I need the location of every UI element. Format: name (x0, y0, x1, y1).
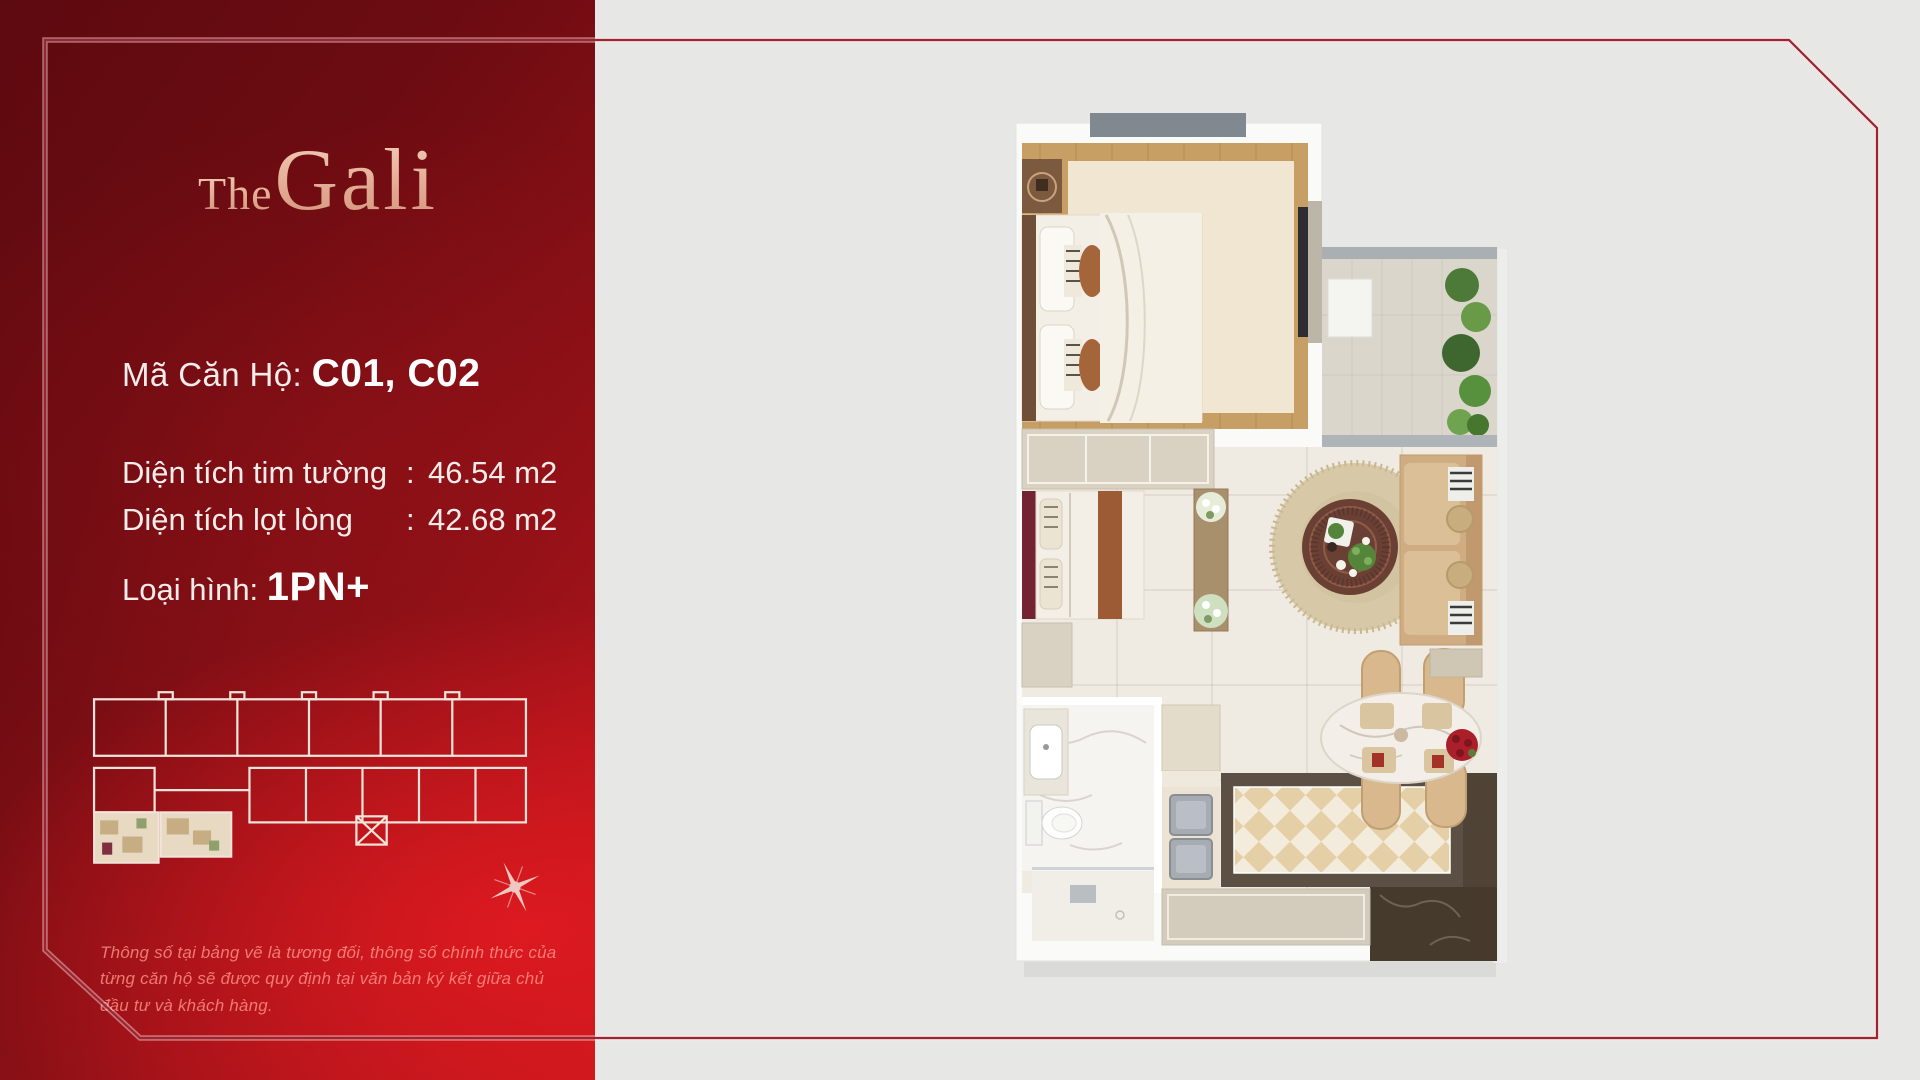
sofa (1400, 455, 1482, 677)
balcony-rail-bottom (1322, 435, 1497, 447)
shower (1032, 867, 1154, 941)
unit-type-line: Loại hình: 1PN+ (122, 565, 370, 610)
unit-type-value: 1PN+ (267, 565, 370, 609)
bed-runner (1098, 491, 1122, 619)
flower-console (1194, 489, 1228, 631)
headboard (1022, 491, 1036, 619)
unit-code-line: Mã Căn Hộ: C01, C02 (122, 352, 480, 396)
brochure-page: { "background": "#e7e7e5", "brand": { "p… (0, 0, 1920, 1080)
brand-prefix: The (198, 167, 273, 220)
unit-type-label: Loại hình: (122, 572, 267, 607)
area-row-carpet: Diện tích lọt lòng : 42.68 m2 (122, 496, 557, 543)
unit-floor-plan (1010, 95, 1510, 985)
tv-screen (1298, 207, 1308, 337)
area-value: 46.54 m2 (428, 449, 557, 496)
side-table (1430, 649, 1482, 677)
area-separator: : (406, 496, 428, 543)
area-row-wall-center: Diện tích tim tường : 46.54 m2 (122, 449, 557, 496)
compass-icon (486, 858, 544, 916)
bathroom (1022, 697, 1162, 941)
nightstand (1022, 159, 1062, 213)
vanity-sink (1024, 709, 1068, 795)
balcony (1322, 247, 1497, 447)
key-plan-bottom-row (249, 768, 525, 822)
area-separator: : (406, 449, 428, 496)
unit-code-value: C01, C02 (312, 352, 481, 395)
wardrobe (1022, 429, 1214, 489)
brand-logo: TheGali (168, 130, 468, 231)
area-label: Diện tích lọt lòng (122, 496, 406, 543)
key-plan-highlighted-units (94, 812, 231, 862)
small-bedroom-cabinet (1022, 623, 1072, 687)
balcony-rail (1322, 247, 1497, 259)
flower-bouquet (1446, 729, 1478, 761)
master-bedroom (1022, 113, 1322, 429)
disclaimer-text: Thông số tại bảng vẽ là tương đối, thông… (100, 940, 562, 1019)
key-plan (88, 688, 532, 870)
dark-marble-floor (1370, 887, 1497, 961)
plan-shadow (1024, 959, 1496, 977)
unit-code-label: Mã Căn Hộ: (122, 356, 312, 393)
double-bed (1022, 213, 1202, 423)
brand-name: Gali (275, 130, 439, 231)
kitchen-counter (1162, 889, 1370, 945)
area-label: Diện tích tim tường (122, 449, 406, 496)
balcony-cabinet (1328, 279, 1372, 337)
tv-console (1308, 201, 1322, 343)
area-specs: Diện tích tim tường : 46.54 m2 Diện tích… (122, 449, 557, 543)
coffee-table (1302, 499, 1398, 595)
area-value: 42.68 m2 (428, 496, 557, 543)
window-lintel (1090, 113, 1246, 137)
